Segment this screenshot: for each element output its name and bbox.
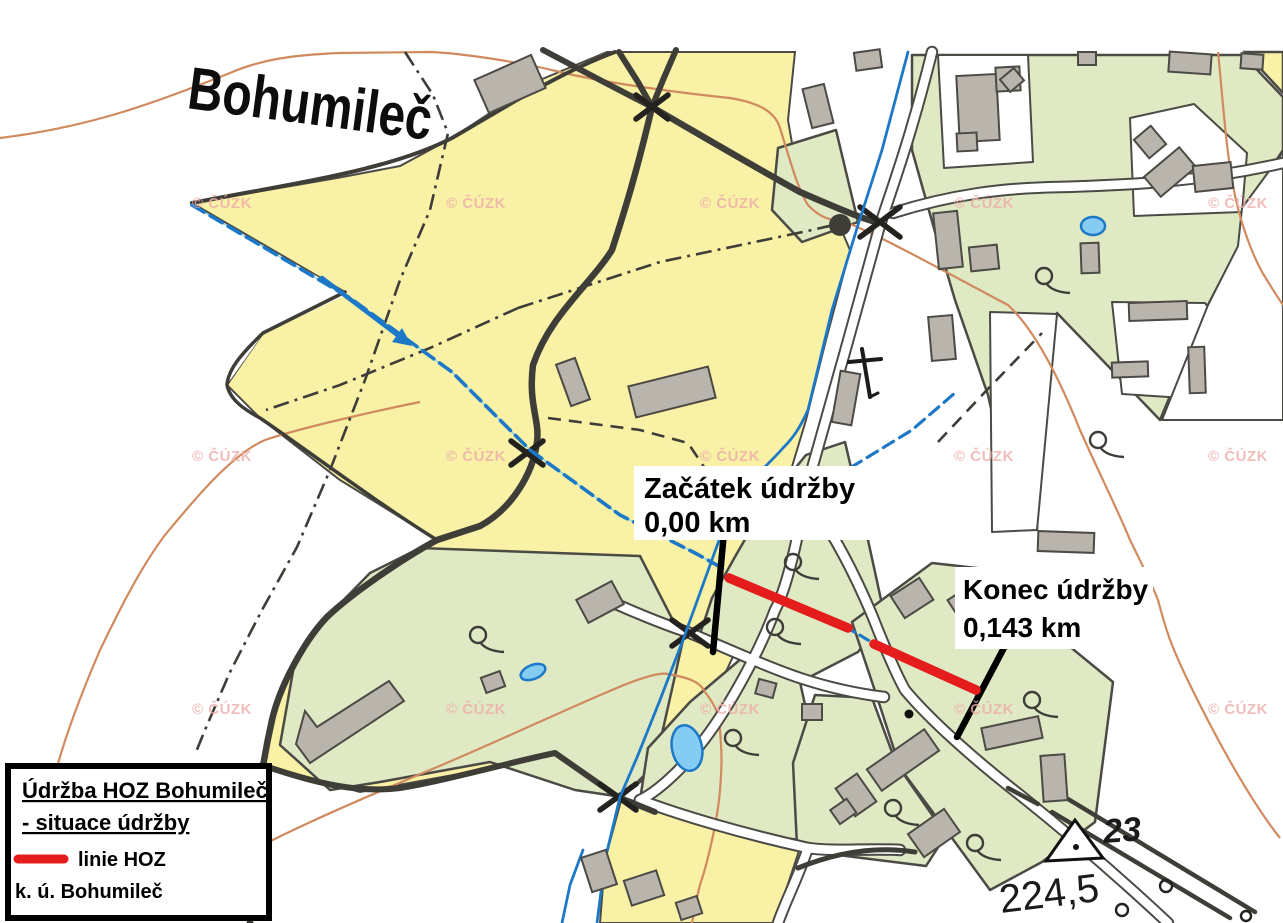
circle-symbol — [1116, 904, 1128, 916]
watermark: © ČÚZK — [192, 447, 252, 465]
legend-hoz-line-label: linie HOZ — [78, 849, 166, 871]
trig-point-label: 23 — [1101, 810, 1142, 851]
building — [1240, 53, 1263, 69]
building — [1193, 162, 1234, 192]
building — [1188, 347, 1206, 394]
watermark: © ČÚZK — [446, 700, 506, 718]
watermark: © ČÚZK — [954, 700, 1014, 718]
watermark: © ČÚZK — [192, 700, 252, 718]
building — [928, 315, 956, 361]
watermark: © ČÚZK — [1208, 700, 1268, 718]
building — [1040, 754, 1067, 802]
building — [1038, 531, 1095, 553]
map-viewport: 23 224,5 Bohumileč © ČÚZK © ČÚZK © ČÚZK … — [0, 0, 1283, 923]
junction-dot — [829, 214, 851, 236]
watermark: © ČÚZK — [446, 194, 506, 212]
start-label-line2: 0,00 km — [644, 507, 750, 539]
watermark: © ČÚZK — [954, 194, 1014, 212]
end-label-line1: Konec údržby — [963, 574, 1149, 605]
watermark: © ČÚZK — [446, 447, 506, 465]
building — [1112, 361, 1149, 377]
building — [957, 132, 978, 151]
building — [755, 679, 776, 698]
legend-box: Údržba HOZ Bohumileč - situace údržby li… — [8, 766, 269, 918]
watermark: © ČÚZK — [700, 700, 760, 718]
end-label-line2: 0,143 km — [963, 612, 1081, 643]
building — [1078, 52, 1096, 65]
maintenance-end-label: Konec údržby 0,143 km — [955, 567, 1153, 649]
watermark: © ČÚZK — [1208, 447, 1268, 465]
pond — [1081, 217, 1105, 235]
building — [933, 211, 963, 269]
building — [802, 84, 833, 128]
watermark: © ČÚZK — [700, 447, 760, 465]
building — [854, 49, 882, 70]
start-label-line1: Začátek údržby — [644, 473, 855, 505]
farmyard — [990, 312, 1057, 532]
legend-title-line1: Údržba HOZ Bohumileč — [22, 778, 268, 803]
town-name-label: Bohumileč — [184, 54, 436, 153]
building — [802, 704, 822, 720]
watermark: © ČÚZK — [954, 447, 1014, 465]
maintenance-start-label: Začátek údržby 0,00 km — [634, 466, 874, 540]
circle-symbol — [1241, 911, 1251, 921]
building — [956, 74, 999, 142]
building — [1168, 52, 1211, 75]
building — [969, 245, 999, 272]
meadow-parcel — [280, 548, 683, 797]
stream — [562, 850, 583, 923]
orchard-tree-icon — [1090, 432, 1124, 457]
building — [1080, 243, 1099, 274]
watermark: © ČÚZK — [700, 194, 760, 212]
watermark: © ČÚZK — [192, 194, 252, 212]
legend-title-line2: - situace údržby — [22, 810, 190, 835]
map-image: 23 224,5 Bohumileč © ČÚZK © ČÚZK © ČÚZK … — [0, 0, 1283, 923]
watermark: © ČÚZK — [1208, 194, 1268, 212]
point-dot — [905, 710, 914, 719]
building — [1129, 301, 1188, 321]
legend-cadastral-area-label: k. ú. Bohumileč — [15, 881, 163, 903]
